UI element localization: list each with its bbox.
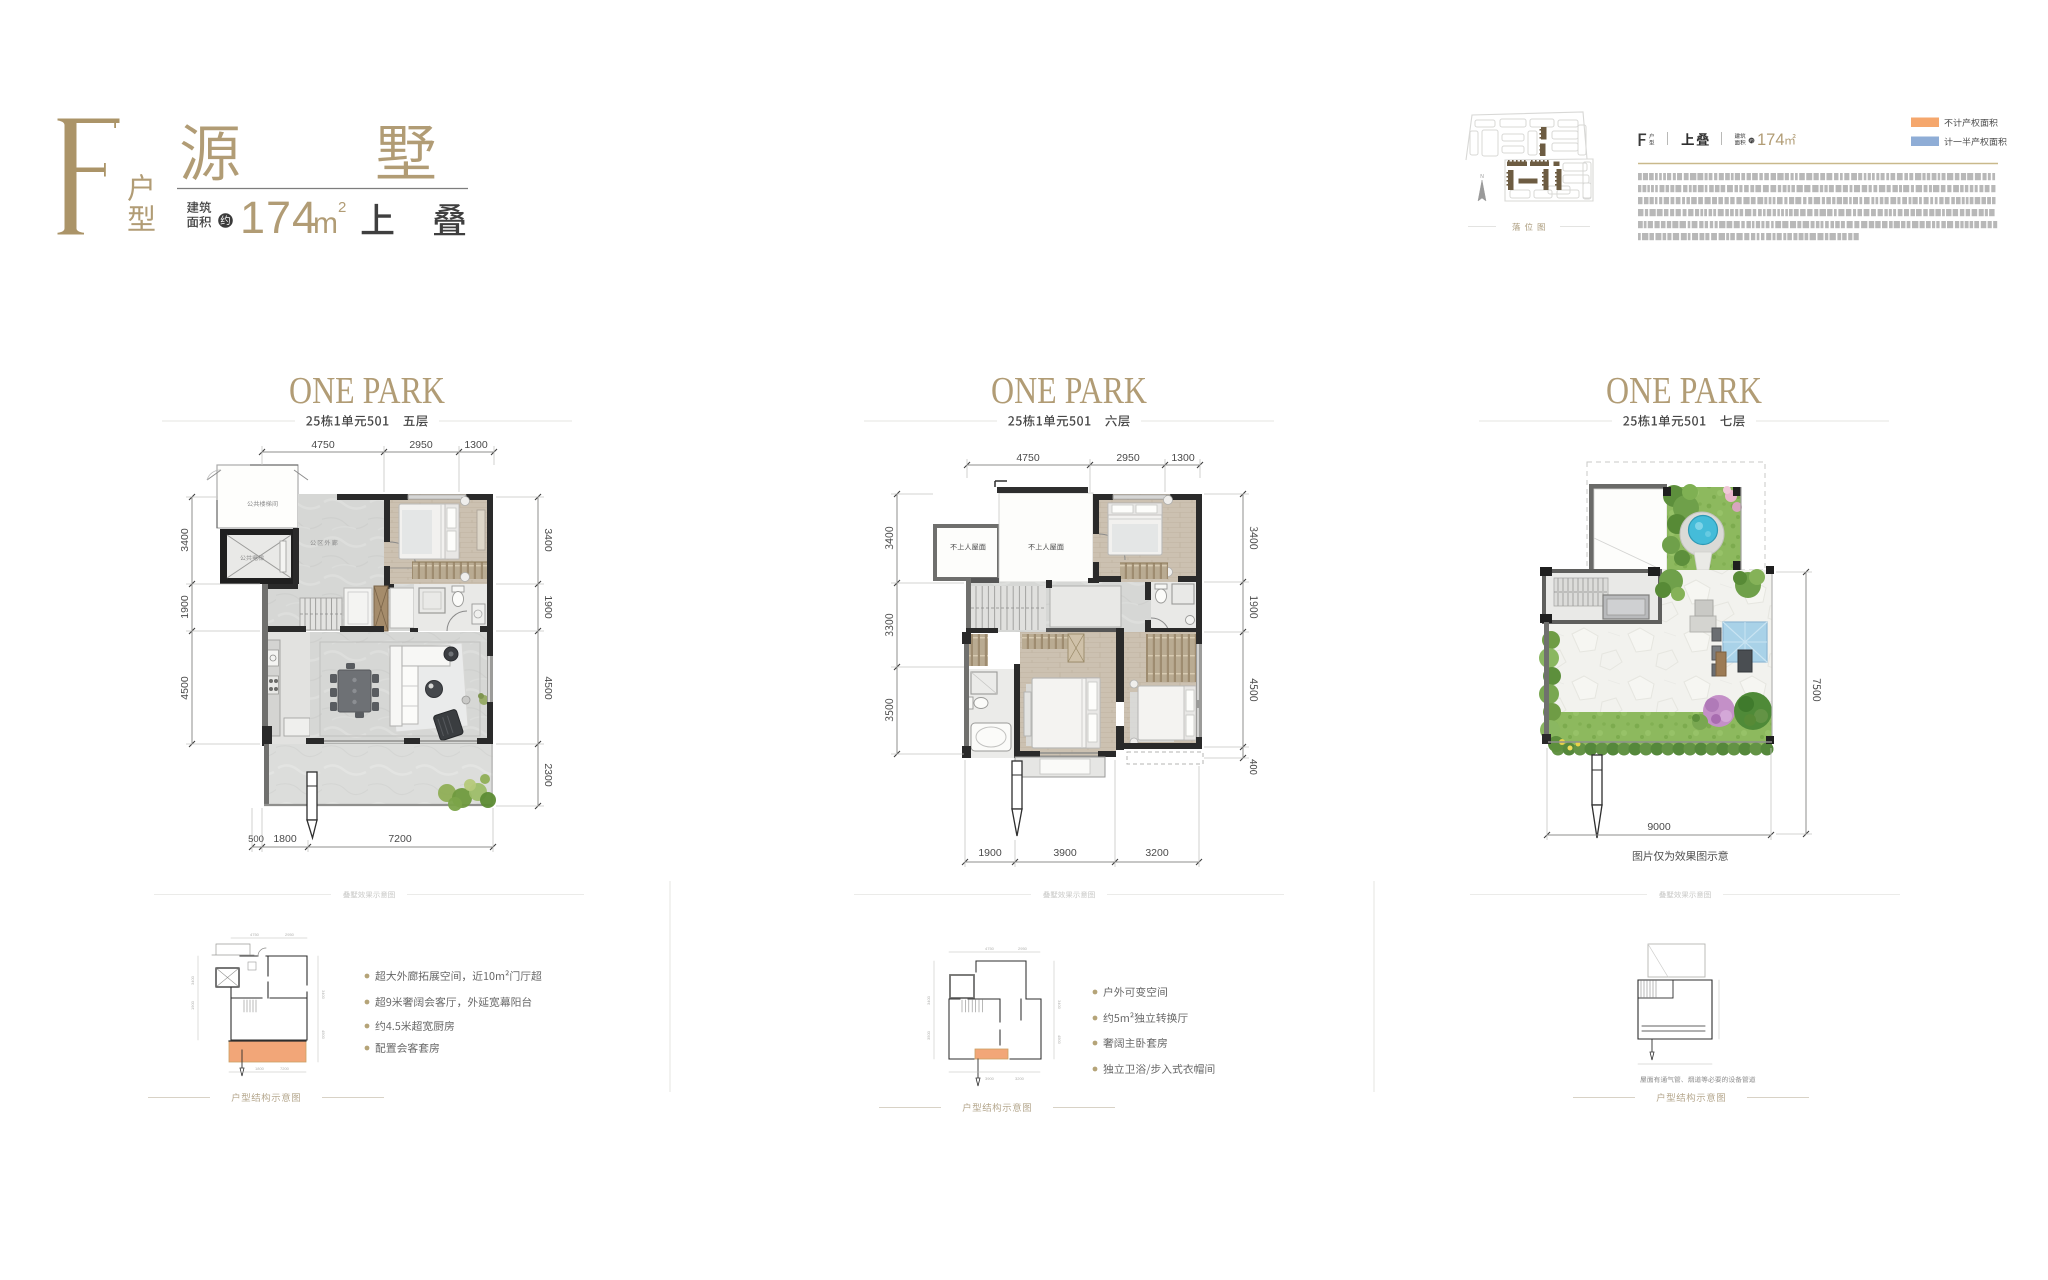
svg-text:2950: 2950 [285,932,295,937]
svg-text:3400: 3400 [926,995,931,1005]
svg-text:4500: 4500 [179,676,191,700]
svg-text:174: 174 [1757,131,1785,149]
svg-text:4750: 4750 [1016,452,1040,464]
svg-text:N: N [1480,174,1484,180]
svg-text:3400: 3400 [1057,1000,1062,1010]
svg-text:7200: 7200 [388,833,412,845]
svg-text:1900: 1900 [542,595,554,619]
svg-text:2: 2 [338,199,346,216]
svg-text:4750: 4750 [311,439,335,451]
svg-text:ONE PARK: ONE PARK [991,370,1147,412]
svg-text:ONE PARK: ONE PARK [289,370,445,412]
svg-text:4500: 4500 [542,676,554,700]
svg-text:4750: 4750 [985,946,995,951]
svg-text:1800: 1800 [255,1066,265,1071]
svg-text:3400: 3400 [321,990,326,1000]
svg-text:3500: 3500 [926,1030,931,1040]
svg-text:3400: 3400 [179,528,191,552]
svg-text:1300: 1300 [1171,452,1195,464]
svg-text:3400: 3400 [542,528,554,552]
svg-text:4500: 4500 [321,1030,326,1040]
svg-text:4500: 4500 [1057,1035,1062,1045]
svg-text:2300: 2300 [542,763,554,787]
svg-text:1900: 1900 [179,595,191,619]
svg-text:2950: 2950 [409,439,433,451]
svg-text:9000: 9000 [1647,821,1671,833]
svg-text:3200: 3200 [1015,1076,1025,1081]
svg-text:1900: 1900 [190,1000,195,1010]
svg-text:3200: 3200 [1145,847,1169,859]
svg-text:3900: 3900 [1053,847,1077,859]
svg-text:2950: 2950 [1018,946,1028,951]
svg-text:4750: 4750 [250,932,260,937]
svg-text:ONE PARK: ONE PARK [1606,370,1762,412]
svg-text:174: 174 [240,192,318,243]
svg-text:7200: 7200 [280,1066,290,1071]
svg-text:3900: 3900 [985,1076,995,1081]
svg-text:1300: 1300 [464,439,488,451]
svg-text:1900: 1900 [978,847,1002,859]
svg-text:1800: 1800 [273,833,297,845]
svg-text:2950: 2950 [1116,452,1140,464]
svg-text:3400: 3400 [190,975,195,985]
svg-text:m: m [313,207,338,240]
svg-text:500: 500 [248,834,264,845]
